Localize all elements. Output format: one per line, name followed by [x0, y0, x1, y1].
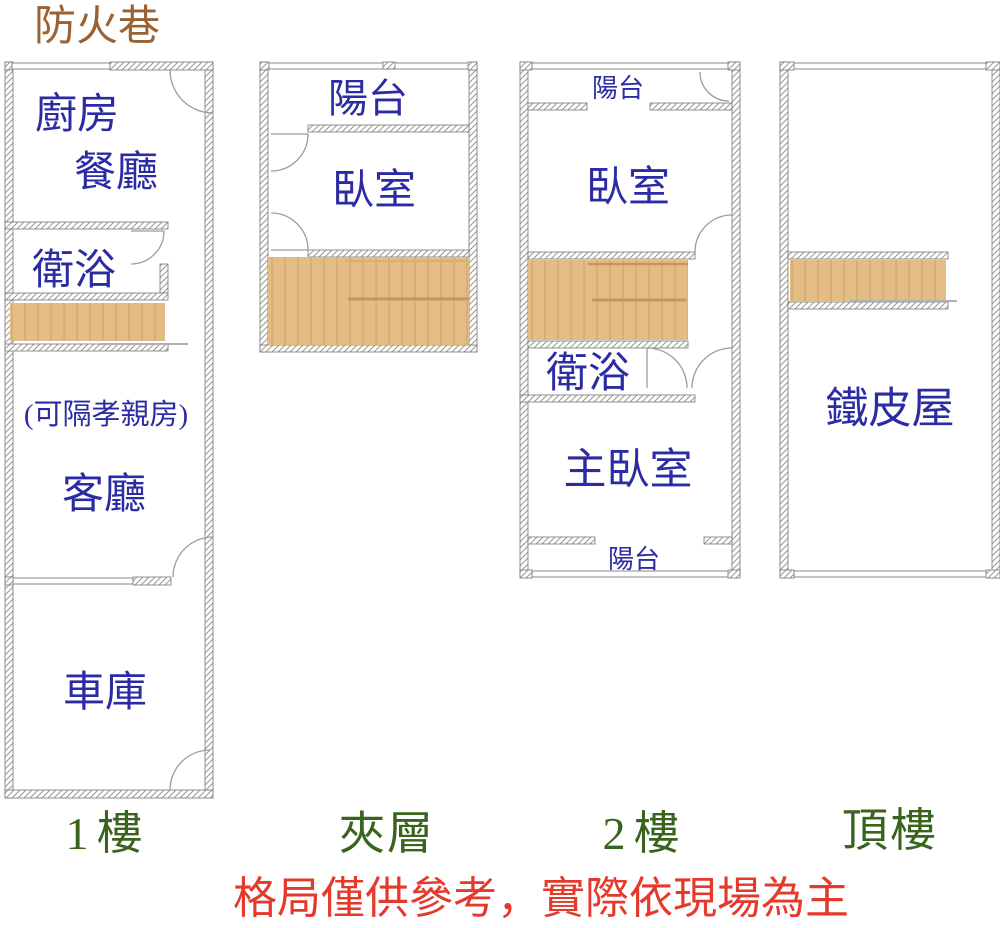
- roof-top-railing: [794, 63, 986, 69]
- bedroom-2f-label: 臥室: [586, 164, 670, 211]
- dining-label: 餐廳: [74, 149, 158, 196]
- mz-bedroom-wall: [308, 250, 469, 257]
- living-room-label: 客廳: [62, 471, 146, 518]
- elder-room-note-label: (可隔孝親房): [24, 398, 188, 431]
- area-roof-open: [788, 70, 992, 252]
- f2-bottom-corner-right: [728, 570, 740, 578]
- roof-bottom-corner-right: [986, 570, 1000, 578]
- f1-bath-bottom-wall: [5, 293, 168, 300]
- roof-stair-top-wall: [788, 252, 948, 259]
- f1-bottom-wall: [5, 790, 213, 798]
- f2-top-corner-left: [520, 62, 532, 70]
- roof-bottom-railing: [794, 571, 986, 577]
- roof-top-corner-left: [780, 62, 794, 70]
- disclaimer-text: 格局僅供參考，實際依現場為主: [233, 874, 849, 923]
- bathroom-2f-label: 衛浴: [546, 351, 630, 397]
- f2-left-wall: [520, 62, 528, 576]
- f1-living-wall-corner: [5, 577, 13, 585]
- balcony-2f-bottom-label: 陽台: [608, 545, 660, 574]
- f1-right-wall: [205, 62, 213, 798]
- roof-right-wall: [992, 62, 1000, 578]
- mz-top-corner-right: [468, 62, 477, 70]
- master-bedroom-label: 主臥室: [564, 446, 693, 494]
- metal-shed-label: 鐵皮屋: [826, 386, 955, 433]
- floorplan-1f: 防火巷 廚房 餐廳 衛浴 (可隔孝親房) 客廳 車庫 1樓: [5, 4, 213, 859]
- bedroom-mezz-label: 臥室: [332, 167, 416, 214]
- area-living-room: [13, 351, 205, 577]
- mz-top-window: [269, 63, 468, 69]
- f2-right-wall: [732, 62, 740, 576]
- f2-balcony-wall-right: [650, 103, 732, 110]
- area-metal-shed: [788, 309, 992, 570]
- mz-left-wall: [260, 62, 268, 352]
- mz-balcony-wall: [308, 125, 469, 132]
- f2-top-window: [532, 63, 728, 69]
- mz-top-corner-left: [260, 62, 269, 70]
- roof-left-wall: [780, 62, 788, 578]
- f1-left-wall: [5, 62, 13, 798]
- garage-label: 車庫: [63, 670, 147, 716]
- roof-top-corner-right: [986, 62, 1000, 70]
- f2-bath-top-wall: [528, 341, 688, 348]
- balcony-mezz-label: 陽台: [328, 76, 408, 121]
- f2-balcony2-wall-right: [704, 537, 732, 544]
- f1-top-window: [12, 63, 110, 69]
- mz-bottom-wall: [260, 345, 477, 352]
- f1-top-corner: [5, 62, 12, 70]
- mz-right-wall: [469, 62, 477, 352]
- mezzanine-title: 夾層: [339, 808, 435, 859]
- f1-top-wall: [110, 62, 213, 70]
- roof-bottom-corner-left: [780, 570, 794, 578]
- floor2-title: 2樓: [603, 808, 688, 859]
- f1-stairs: [10, 303, 165, 341]
- roof-title: 頂樓: [842, 805, 938, 856]
- f2-balcony2-wall-left: [528, 537, 595, 544]
- f2-bedroom-wall: [528, 252, 695, 259]
- kitchen-label: 廚房: [35, 91, 119, 138]
- f1-bath-right-wall: [160, 264, 168, 293]
- floor1-title: 1樓: [66, 808, 151, 859]
- roof-stair-bottom-wall: [788, 302, 948, 309]
- f2-bottom-corner-left: [520, 570, 532, 578]
- f1-stair-bottom-wall: [5, 344, 168, 351]
- mezzanine-stairs: [268, 257, 469, 345]
- balcony-2f-top-label: 陽台: [592, 74, 644, 103]
- fire-lane-label: 防火巷: [34, 4, 160, 50]
- bathroom-1f-label: 衛浴: [32, 248, 116, 294]
- floor-plan-canvas: 防火巷 廚房 餐廳 衛浴 (可隔孝親房) 客廳 車庫 1樓 陽台: [0, 0, 1000, 928]
- roof-stairs: [790, 260, 946, 302]
- f2-top-corner-right: [728, 62, 740, 70]
- f2-balcony-wall-left: [528, 103, 587, 110]
- mz-top-post: [383, 62, 395, 69]
- f1-bath-top-wall: [5, 222, 168, 229]
